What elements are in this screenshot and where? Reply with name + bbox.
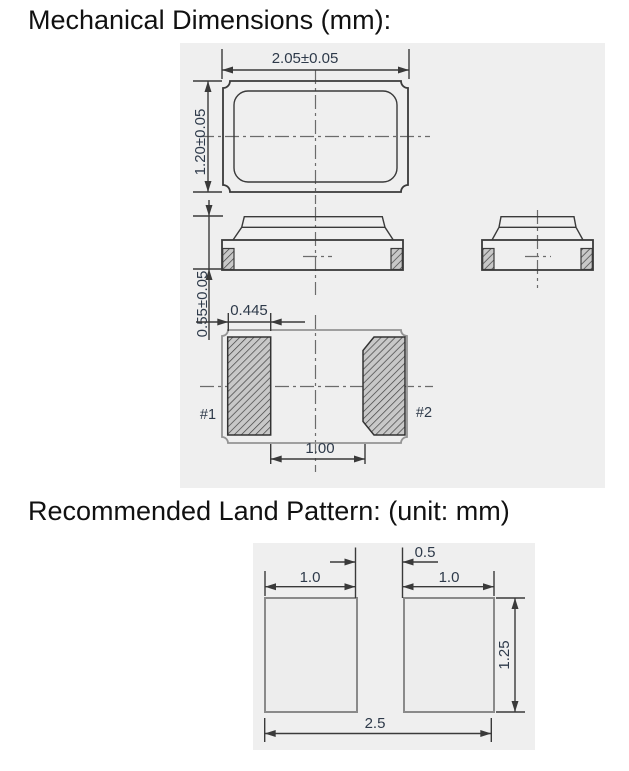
end-view-right-terminal (581, 249, 592, 270)
dimension-thickness: 0.55±0.05 (193, 200, 223, 340)
left-pad-width-value: 1.0 (300, 569, 321, 586)
dimension-gap: 0.5 (330, 544, 438, 562)
bottom-pad-1 (228, 337, 271, 435)
dimension-pad-width: 0.445 (196, 302, 305, 331)
mechanical-dimensions-panel: 2.05±0.05 1.20±0.05 0.55±0.05 (180, 43, 605, 488)
side-view-front (222, 207, 403, 295)
land-pattern-panel: 0.5 1.0 1.0 1.25 (253, 543, 535, 750)
dimension-right-pad-width: 1.0 (403, 569, 495, 587)
top-view (200, 70, 430, 204)
bottom-pad-2 (363, 337, 405, 435)
overall-width-value: 2.5 (365, 715, 386, 732)
land-pad-right (404, 598, 494, 712)
side-view-base (222, 240, 403, 270)
thickness-value: 0.55±0.05 (194, 271, 211, 338)
right-pad-width-value: 1.0 (439, 569, 460, 586)
dimension-overall-width: 2.5 (265, 715, 492, 742)
land-pattern-title: Recommended Land Pattern: (unit: mm) (28, 496, 510, 527)
dimension-left-pad-width: 1.0 (265, 569, 356, 587)
pad-width-value: 0.445 (230, 302, 268, 319)
side-view-lid (233, 217, 393, 240)
mechanical-dimensions-title: Mechanical Dimensions (mm): (28, 5, 391, 36)
land-pad-left (265, 598, 357, 712)
datasheet-page: Mechanical Dimensions (mm): (0, 0, 629, 771)
side-view-end (482, 210, 593, 288)
side-view-left-terminal (223, 249, 234, 270)
side-view-right-terminal (391, 249, 402, 270)
gap-value: 0.5 (415, 544, 436, 561)
pad-spacing-value: 1.00 (305, 440, 334, 457)
body-width-value: 2.05±0.05 (272, 50, 339, 67)
pad1-label: #1 (200, 407, 216, 423)
pad2-label: #2 (416, 405, 432, 421)
pad-height-value: 1.25 (496, 640, 513, 669)
dimension-pad-height: 1.25 (496, 598, 525, 712)
mechanical-drawing: 2.05±0.05 1.20±0.05 0.55±0.05 (180, 43, 605, 488)
dimension-body-height: 1.20±0.05 (192, 81, 222, 192)
land-pattern-drawing: 0.5 1.0 1.0 1.25 (253, 543, 535, 750)
body-height-value: 1.20±0.05 (192, 109, 209, 176)
end-view-left-terminal (483, 249, 494, 270)
